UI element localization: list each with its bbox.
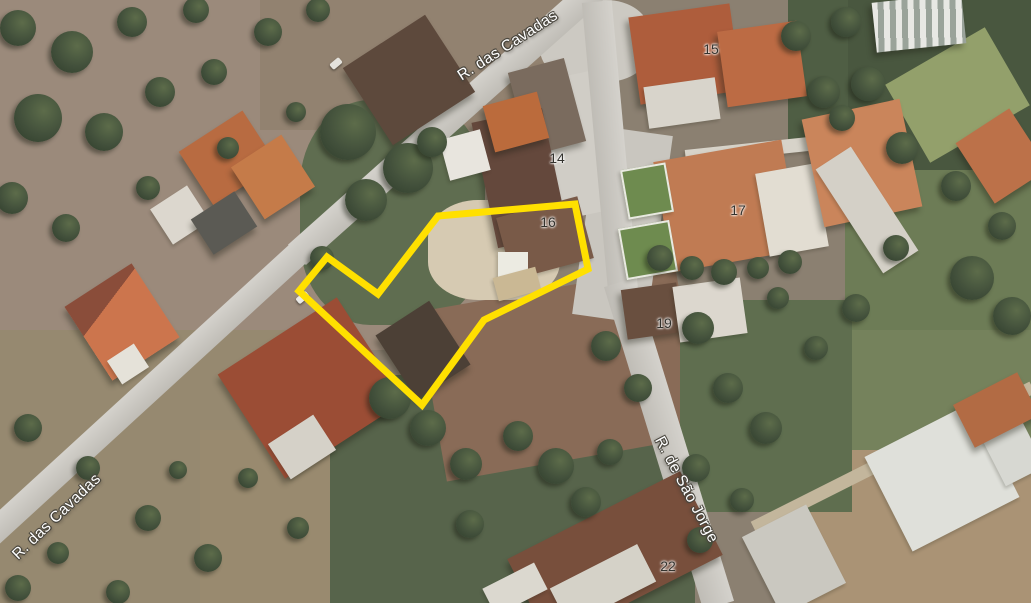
labels-layer: R. das Cavadas R. das Cavadas R. de São … — [0, 0, 1031, 603]
address-marker-16[interactable]: 16 — [540, 214, 556, 230]
satellite-map[interactable]: R. das Cavadas R. das Cavadas R. de São … — [0, 0, 1031, 603]
address-marker-17[interactable]: 17 — [730, 202, 746, 218]
address-marker-15[interactable]: 15 — [703, 41, 719, 57]
address-marker-14[interactable]: 14 — [549, 150, 565, 166]
street-label-sao-jorge[interactable]: R. de São Jorge — [650, 434, 721, 547]
street-label-cavadas-bottom[interactable]: R. das Cavadas — [9, 470, 105, 563]
address-marker-22[interactable]: 22 — [660, 558, 676, 574]
address-marker-19[interactable]: 19 — [656, 315, 672, 331]
street-label-cavadas-top[interactable]: R. das Cavadas — [455, 7, 562, 85]
